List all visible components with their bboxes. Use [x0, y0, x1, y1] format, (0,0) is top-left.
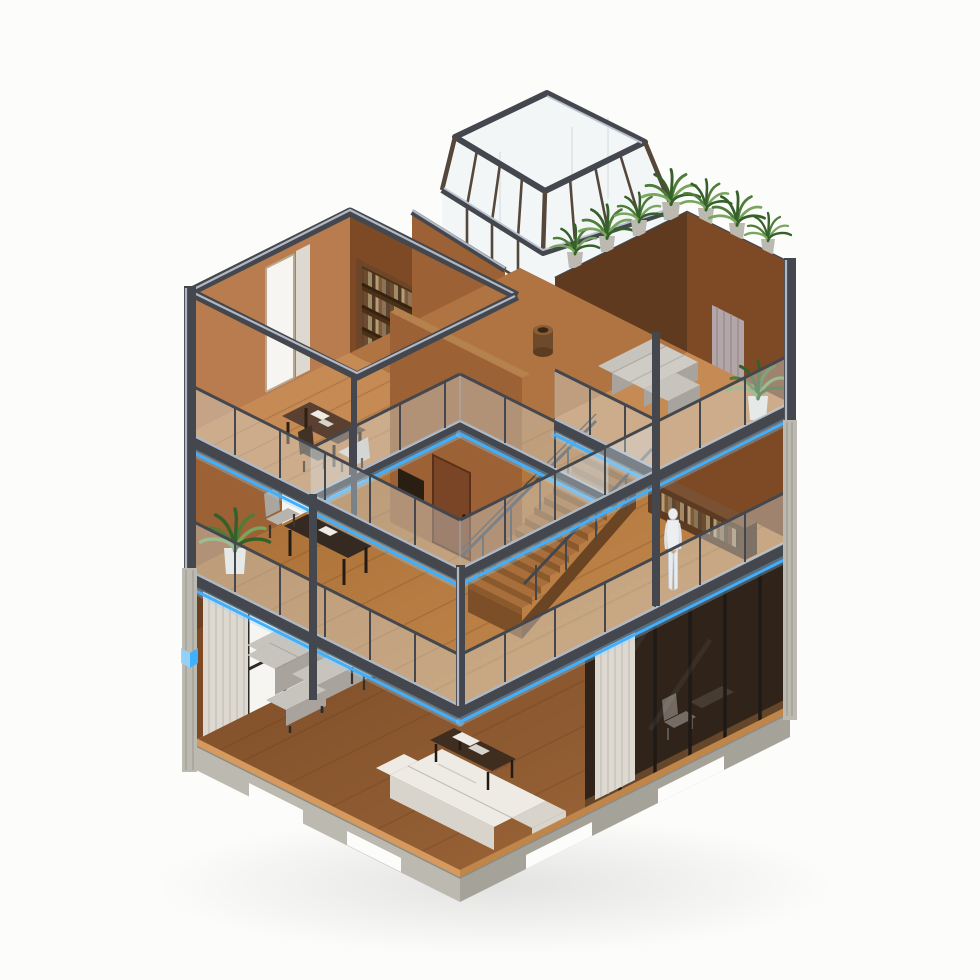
column-mid-right — [652, 332, 660, 606]
column-right — [783, 258, 797, 720]
architectural-render: isometric-architectural-render — [0, 0, 980, 980]
study-window — [266, 244, 310, 392]
column-front — [456, 565, 465, 708]
round-planter — [533, 325, 553, 357]
building-render: isometric-architectural-render — [0, 0, 980, 980]
column-left — [181, 286, 198, 772]
column-mid-left — [309, 494, 317, 700]
